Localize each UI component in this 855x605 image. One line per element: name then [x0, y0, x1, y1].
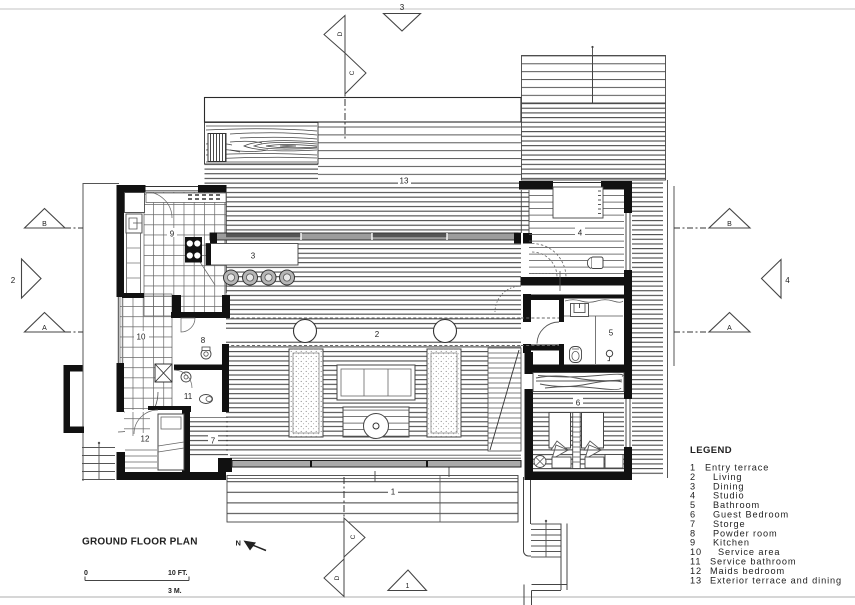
- svg-text:0: 0: [84, 570, 88, 577]
- svg-text:7: 7: [211, 437, 216, 446]
- svg-text:11: 11: [184, 392, 193, 401]
- svg-text:Exterior terrace and dining: Exterior terrace and dining: [710, 575, 842, 585]
- svg-text:N: N: [236, 539, 241, 548]
- svg-text:2: 2: [375, 330, 380, 339]
- svg-text:LEGEND: LEGEND: [690, 445, 732, 456]
- svg-text:B: B: [727, 221, 732, 228]
- svg-text:13: 13: [400, 177, 409, 186]
- svg-text:9: 9: [170, 230, 175, 239]
- svg-text:3: 3: [400, 3, 405, 12]
- svg-text:13: 13: [690, 575, 702, 585]
- svg-text:10: 10: [137, 333, 146, 342]
- svg-text:3 M.: 3 M.: [168, 588, 182, 595]
- svg-text:10 FT.: 10 FT.: [168, 570, 188, 577]
- svg-text:2: 2: [11, 276, 16, 285]
- svg-text:3: 3: [251, 252, 256, 261]
- svg-text:1: 1: [406, 583, 410, 590]
- svg-text:B: B: [42, 221, 47, 228]
- svg-text:4: 4: [785, 276, 790, 285]
- svg-text:12: 12: [141, 435, 150, 444]
- svg-text:D: D: [334, 575, 341, 580]
- svg-text:GROUND FLOOR PLAN: GROUND FLOOR PLAN: [82, 537, 198, 548]
- svg-text:A: A: [727, 325, 732, 332]
- svg-text:4: 4: [578, 229, 583, 238]
- svg-text:8: 8: [201, 336, 206, 345]
- svg-text:1: 1: [391, 488, 396, 497]
- svg-text:5: 5: [609, 329, 614, 338]
- svg-text:6: 6: [576, 399, 581, 408]
- svg-text:D: D: [337, 31, 344, 36]
- svg-text:C: C: [350, 534, 357, 539]
- svg-text:A: A: [42, 325, 47, 332]
- svg-text:C: C: [349, 70, 356, 75]
